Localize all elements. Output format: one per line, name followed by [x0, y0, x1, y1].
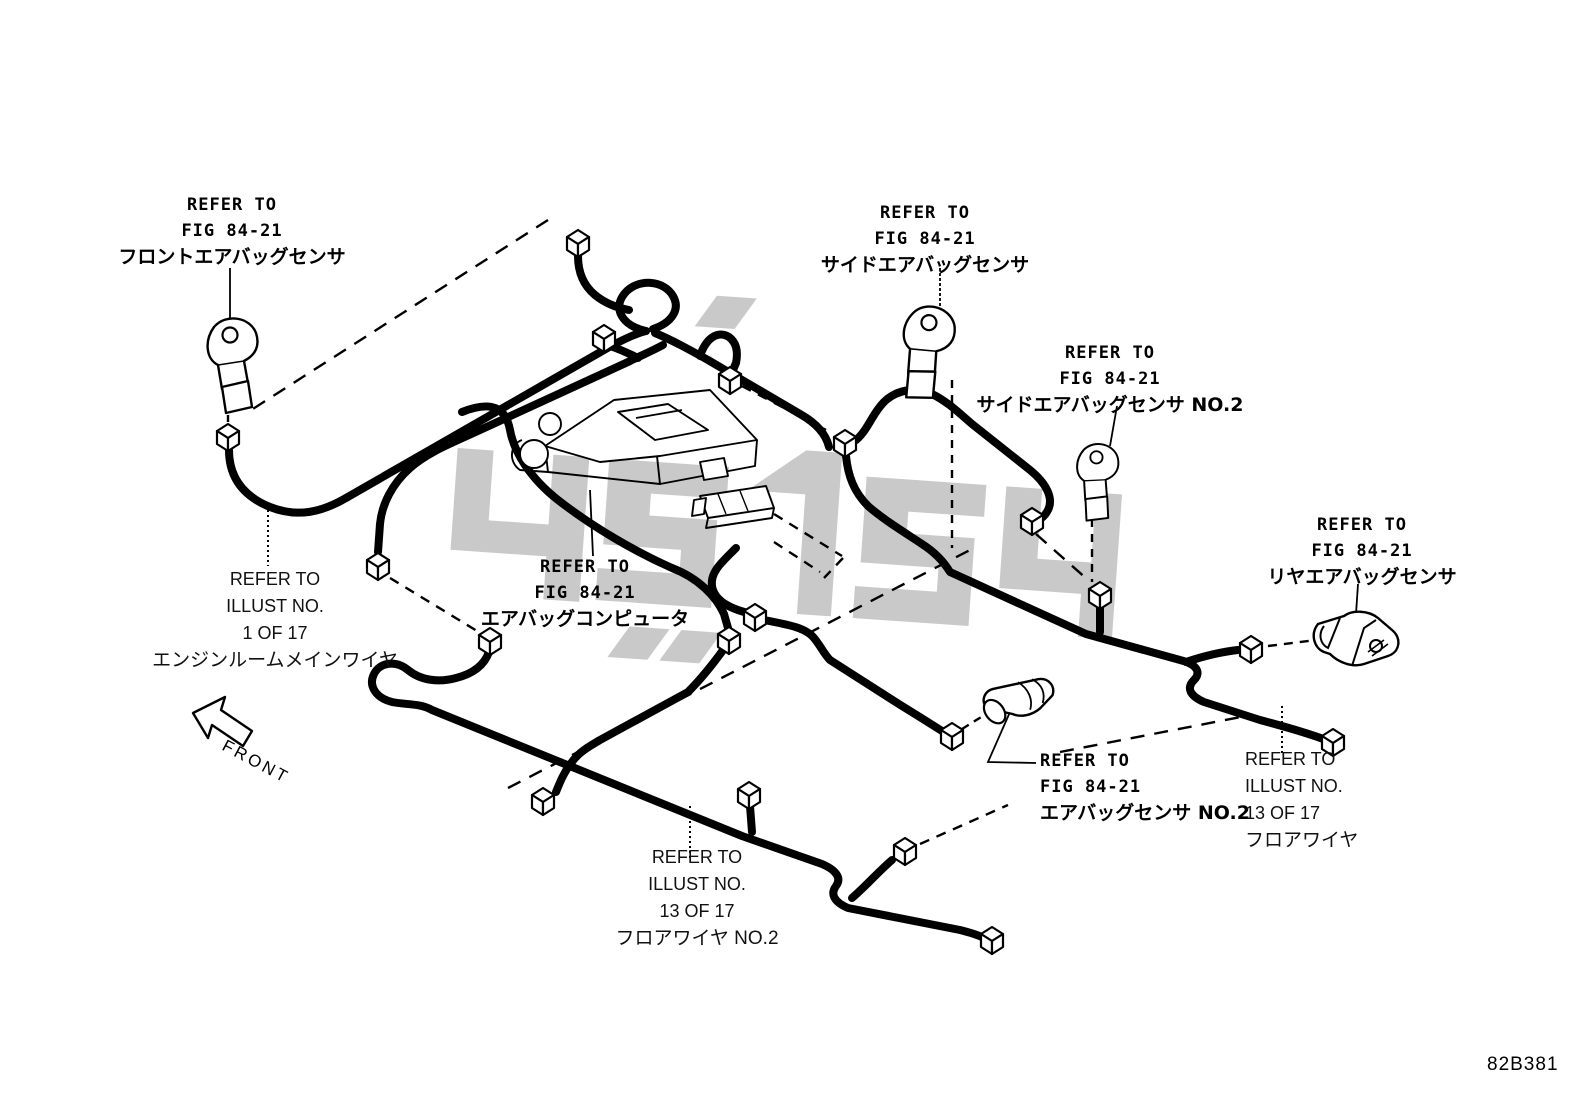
connector-stub	[610, 346, 638, 358]
connector-cube	[479, 628, 501, 655]
label-engine-room-main-wire: REFER TO ILLUST NO. 1 OF 17 エンジンルームメインワイ…	[152, 566, 398, 674]
connector-cube	[718, 627, 740, 654]
floor-connector-drop	[750, 806, 752, 832]
label-line: REFER TO	[1267, 512, 1456, 538]
label-line: REFER TO	[1040, 748, 1250, 774]
rear-airbag-sensor	[1314, 612, 1399, 666]
label-front-airbag-sensor: REFER TO FIG 84-21 フロントエアバッグセンサ	[118, 192, 345, 270]
label-line: 13 OF 17	[615, 898, 778, 925]
connector-cube	[593, 325, 615, 352]
label-line: エンジンルームメインワイヤ	[152, 647, 398, 674]
label-line: REFER TO	[615, 844, 778, 871]
label-line: FIG 84-21	[977, 366, 1244, 392]
label-line: フロントエアバッグセンサ	[118, 244, 345, 270]
label-floor-wire: REFER TO ILLUST NO. 13 OF 17 フロアワイヤ	[1245, 746, 1358, 854]
label-line: ILLUST NO.	[152, 593, 398, 620]
label-line: REFER TO	[152, 566, 398, 593]
label-line: REFER TO	[821, 200, 1029, 226]
connector-cube	[217, 424, 239, 451]
label-side-airbag-sensor: REFER TO FIG 84-21 サイドエアバッグセンサ	[821, 200, 1029, 278]
label-line: ILLUST NO.	[615, 871, 778, 898]
parts-diagram-page: REFER TO FIG 84-21 フロントエアバッグセンサ REFER TO…	[0, 0, 1592, 1099]
label-line: FIG 84-21	[1040, 774, 1250, 800]
label-line: FIG 84-21	[821, 226, 1029, 252]
connector-cube	[567, 230, 589, 257]
label-line: FIG 84-21	[481, 580, 689, 606]
connector-cube	[738, 782, 760, 809]
label-line: FIG 84-21	[118, 218, 345, 244]
label-airbag-computer: REFER TO FIG 84-21 エアバッグコンピュータ	[481, 554, 689, 632]
rear-branch	[1186, 650, 1238, 662]
airbag-sensor-no2	[975, 670, 1059, 731]
label-line: サイドエアバッグセンサ	[821, 252, 1029, 278]
connector-cube	[719, 367, 741, 394]
connector-cube	[941, 723, 963, 750]
label-line: REFER TO	[481, 554, 689, 580]
label-line: フロアワイヤ NO.2	[615, 925, 778, 952]
connector-cube	[744, 604, 766, 631]
connector-cube	[981, 927, 1003, 954]
label-line: フロアワイヤ	[1245, 827, 1358, 854]
label-line: REFER TO	[1245, 746, 1358, 773]
label-rear-airbag-sensor: REFER TO FIG 84-21 リヤエアバッグセンサ	[1267, 512, 1456, 590]
connector-cube	[834, 430, 856, 457]
label-line: FIG 84-21	[1267, 538, 1456, 564]
center-branch	[764, 620, 942, 731]
connector-cube	[1021, 508, 1043, 535]
label-line: エアバッグコンピュータ	[481, 606, 689, 632]
label-line: 1 OF 17	[152, 620, 398, 647]
connector-cube	[1089, 582, 1111, 609]
label-floor-wire-no2: REFER TO ILLUST NO. 13 OF 17 フロアワイヤ NO.2	[615, 844, 778, 952]
floor-stub-to-connector	[852, 860, 892, 898]
label-line: REFER TO	[118, 192, 345, 218]
label-line: ILLUST NO.	[1245, 773, 1358, 800]
label-line: 13 OF 17	[1245, 800, 1358, 827]
front-airbag-sensor	[208, 318, 258, 413]
label-line: REFER TO	[977, 340, 1244, 366]
label-side-airbag-sensor-no2: REFER TO FIG 84-21 サイドエアバッグセンサ NO.2	[977, 340, 1244, 418]
connector-cube	[532, 788, 554, 815]
label-line: エアバッグセンサ NO.2	[1040, 800, 1250, 826]
front-arrow	[193, 697, 252, 746]
connector-cube	[894, 838, 916, 865]
label-line: サイドエアバッグセンサ NO.2	[977, 392, 1244, 418]
label-line: リヤエアバッグセンサ	[1267, 564, 1456, 590]
label-airbag-sensor-no2: REFER TO FIG 84-21 エアバッグセンサ NO.2	[1040, 748, 1250, 826]
connector-cube	[1240, 636, 1262, 663]
figure-code: 82B381	[1487, 1054, 1559, 1076]
